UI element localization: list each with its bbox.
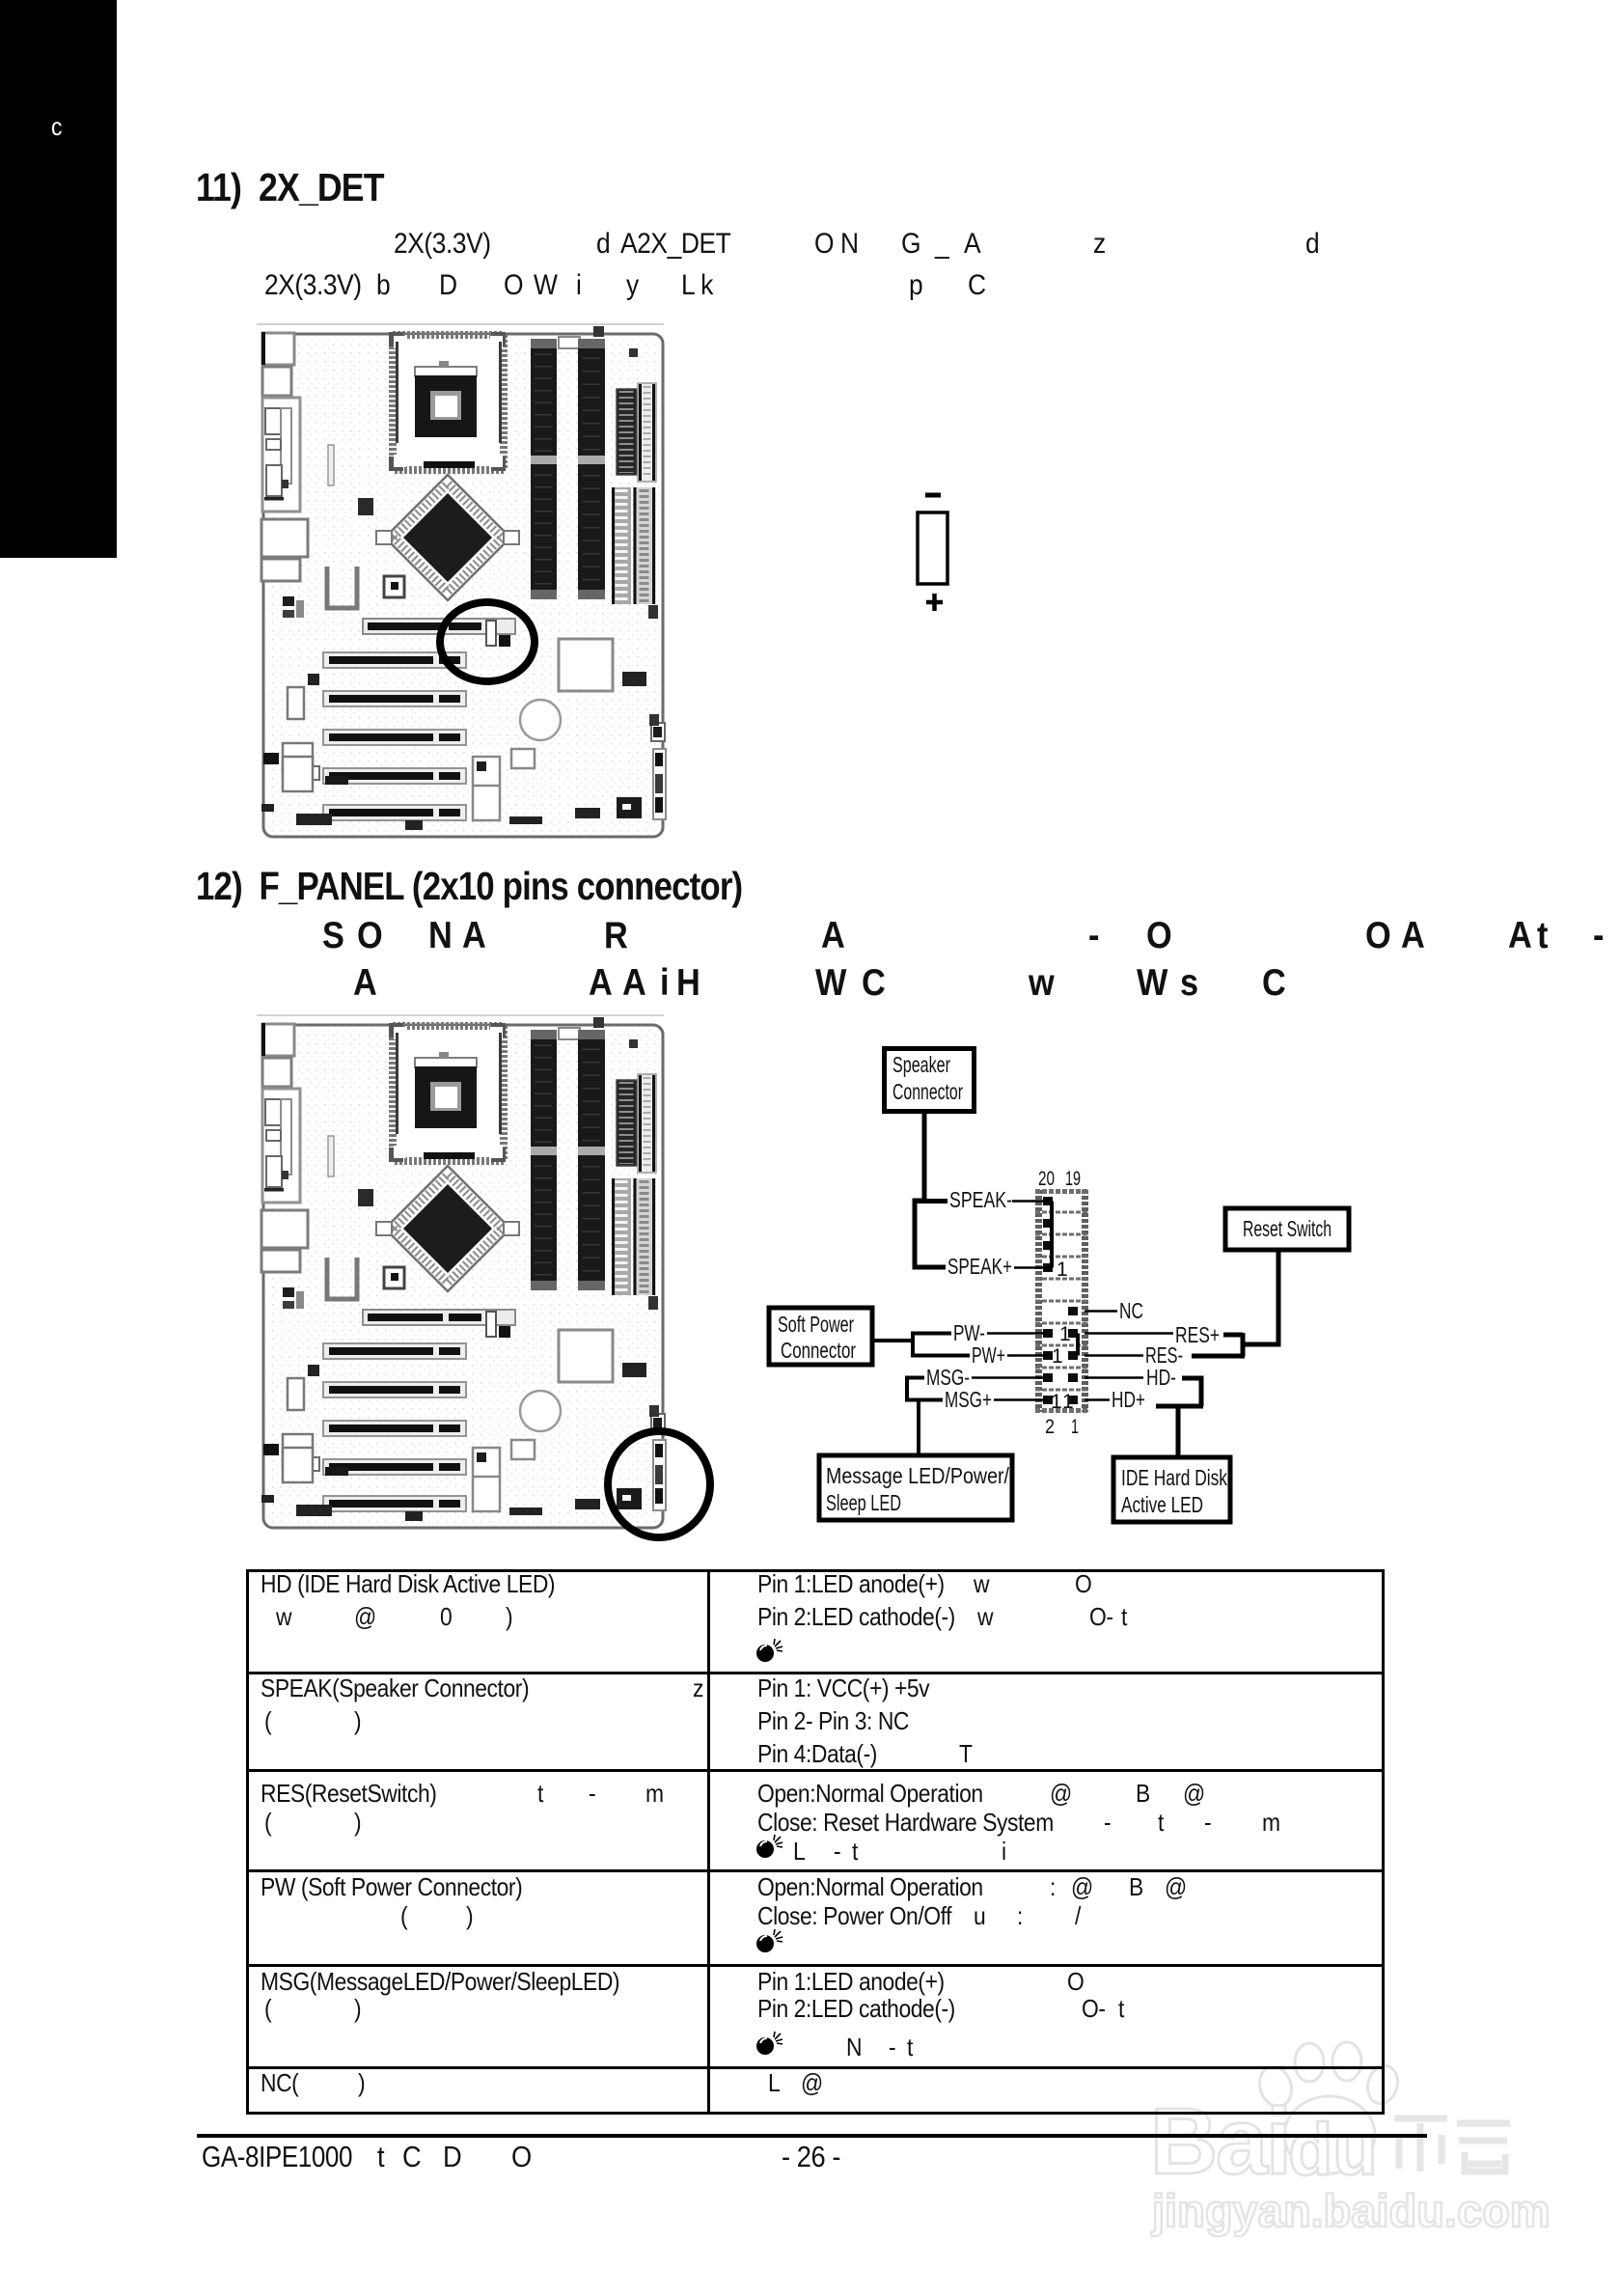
- svg-text:PW+: PW+: [972, 1342, 1005, 1368]
- svg-text:Speaker: Speaker: [892, 1052, 950, 1077]
- svg-text:1: 1: [1059, 1323, 1071, 1345]
- svg-text:Connector: Connector: [781, 1338, 856, 1363]
- svg-text:1: 1: [1071, 1416, 1079, 1438]
- svg-text:19: 19: [1065, 1168, 1081, 1190]
- svg-text:1: 1: [1057, 1259, 1068, 1281]
- svg-text:IDE Hard Disk: IDE Hard Disk: [1121, 1465, 1227, 1490]
- svg-text:HD-: HD-: [1146, 1365, 1176, 1390]
- svg-text:1: 1: [1062, 1391, 1074, 1413]
- svg-text:HD+: HD+: [1112, 1387, 1145, 1412]
- svg-text:SPEAK+: SPEAK+: [947, 1254, 1012, 1279]
- svg-text:20: 20: [1038, 1168, 1055, 1190]
- svg-text:SPEAK-: SPEAK-: [949, 1187, 1012, 1212]
- svg-text:Connector: Connector: [892, 1079, 963, 1104]
- svg-text:Reset Switch: Reset Switch: [1243, 1216, 1332, 1241]
- svg-text:2: 2: [1045, 1416, 1055, 1438]
- svg-text:Active LED: Active LED: [1121, 1492, 1203, 1517]
- svg-text:jingyan.baidu.com: jingyan.baidu.com: [1151, 2185, 1551, 2236]
- svg-text:Sleep LED: Sleep LED: [826, 1490, 901, 1515]
- svg-text:Message LED/Power/: Message LED/Power/: [826, 1463, 1010, 1488]
- svg-text:du: du: [1288, 2109, 1378, 2191]
- svg-text:Soft Power: Soft Power: [778, 1312, 854, 1337]
- svg-text:NC: NC: [1119, 1298, 1143, 1323]
- svg-text:1: 1: [1052, 1345, 1063, 1368]
- svg-text:MSG+: MSG+: [945, 1387, 992, 1412]
- svg-text:1: 1: [1051, 1391, 1062, 1413]
